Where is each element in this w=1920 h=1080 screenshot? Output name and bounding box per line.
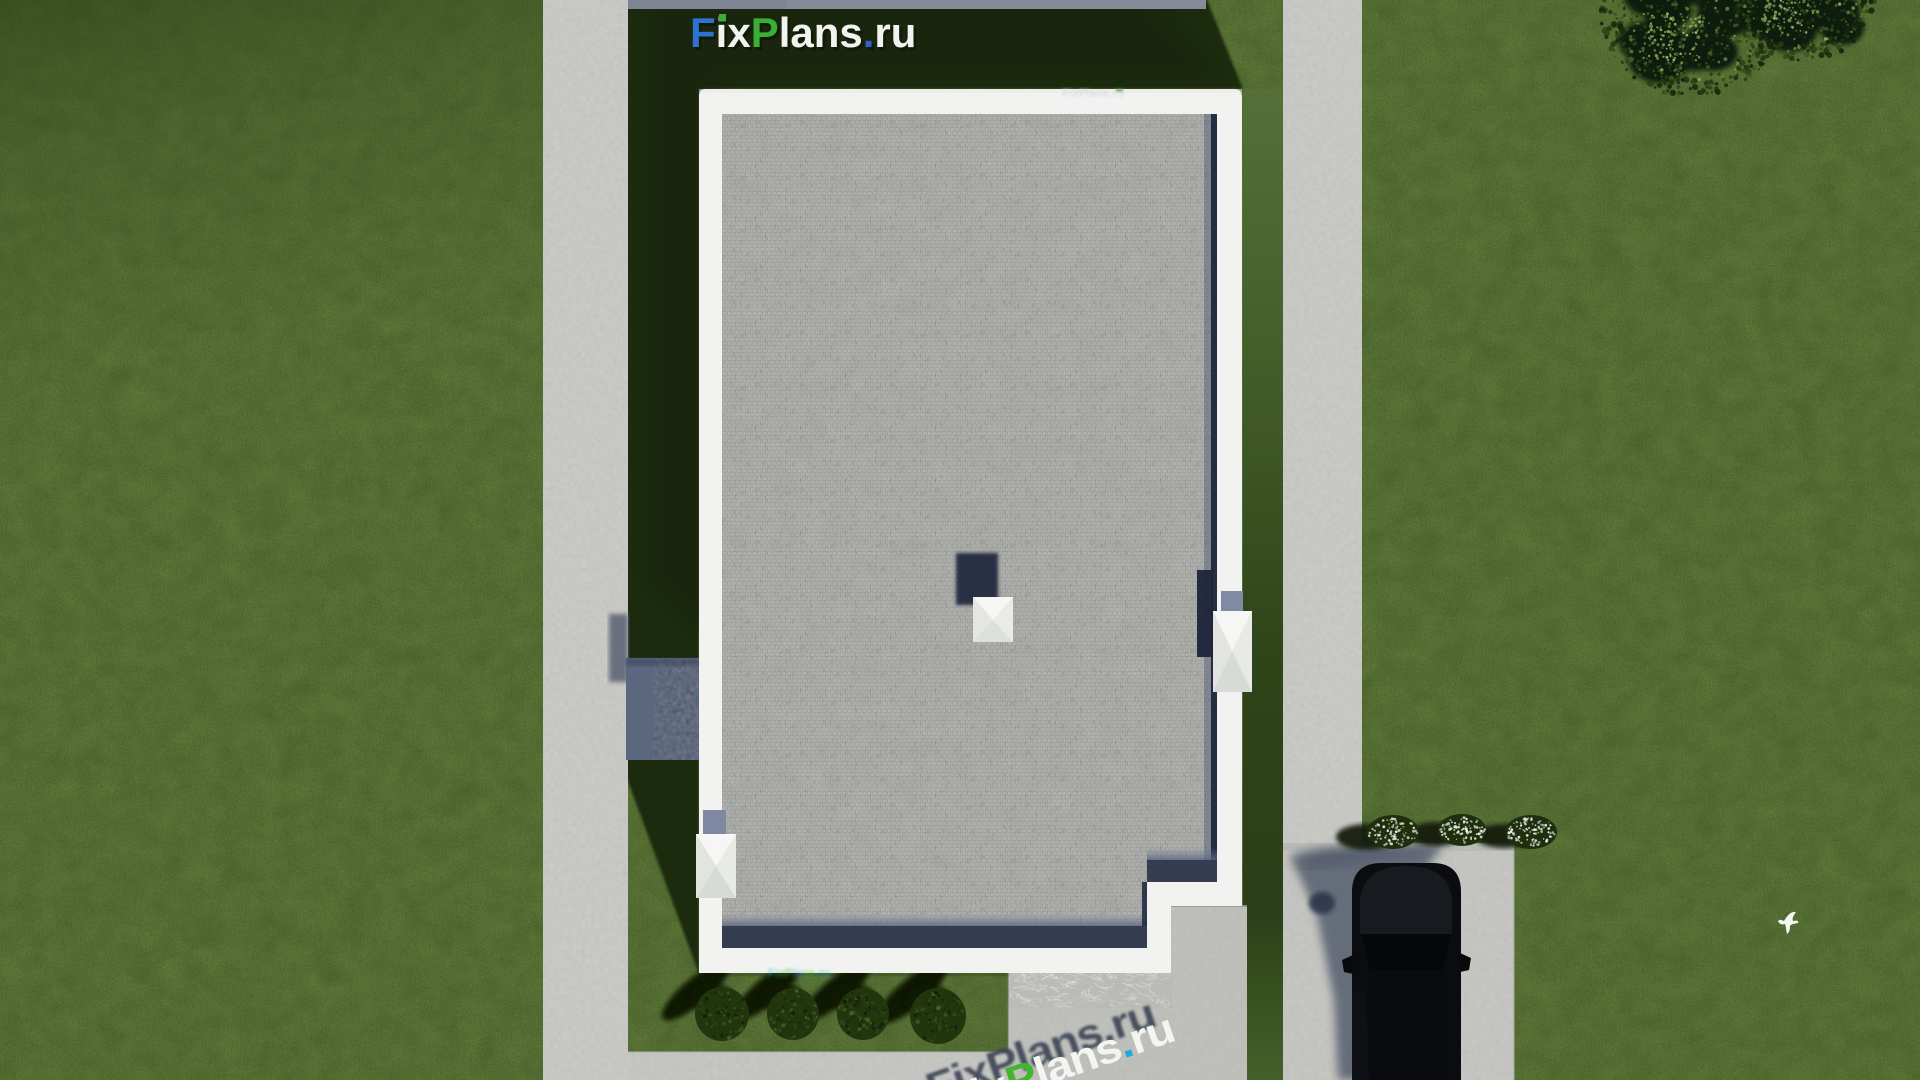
svg-text:FixPlans.ru: FixPlans.ru bbox=[768, 968, 830, 980]
svg-text:FixPlans.ru: FixPlans.ru bbox=[1062, 88, 1124, 100]
